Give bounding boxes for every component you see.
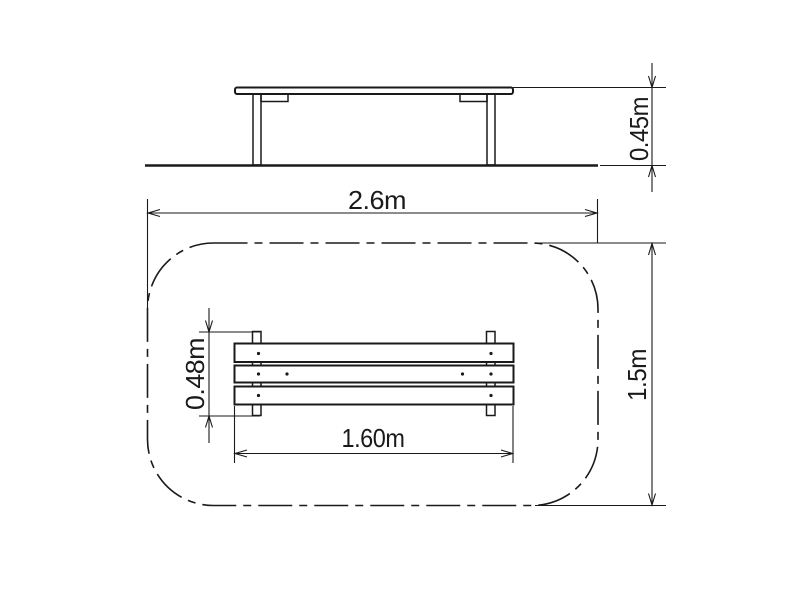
dim-label-zone-depth: 1.5m bbox=[622, 349, 652, 401]
bench-slat-bottom bbox=[235, 387, 514, 405]
dim-label-bench-length: 1.60m bbox=[342, 423, 405, 453]
screw-dot bbox=[489, 394, 492, 397]
dim-label-zone-width: 2.6m bbox=[348, 185, 406, 215]
screw-dot bbox=[489, 352, 492, 355]
bench-slat-middle bbox=[235, 366, 514, 383]
elevation-view bbox=[145, 88, 598, 166]
dim-label-bench-height: 0.45m bbox=[624, 97, 654, 161]
bench-leg-left-side bbox=[253, 94, 261, 165]
screw-dot bbox=[257, 372, 260, 375]
screw-dot bbox=[461, 372, 464, 375]
screw-dot bbox=[285, 372, 288, 375]
screw-dot bbox=[257, 394, 260, 397]
dimension-bench-length: 1.60m bbox=[235, 406, 514, 463]
bench-leg-right-side bbox=[487, 94, 495, 165]
dimension-zone-width: 2.6m bbox=[148, 185, 598, 309]
bench-slat-top bbox=[235, 344, 514, 363]
drawing-canvas: 0.45m 2.6m 1.5m bbox=[0, 0, 800, 600]
bench-seat-side bbox=[235, 88, 513, 95]
dim-label-bench-depth: 0.48m bbox=[180, 338, 210, 410]
bench-bracket-left bbox=[261, 94, 288, 102]
plan-view bbox=[235, 332, 514, 416]
dimension-bench-height: 0.45m bbox=[513, 63, 666, 192]
screw-dot bbox=[489, 372, 492, 375]
screw-dot bbox=[257, 352, 260, 355]
bench-technical-drawing: 0.45m 2.6m 1.5m bbox=[0, 0, 800, 600]
dimension-zone-depth: 1.5m bbox=[535, 243, 666, 506]
bench-bracket-right bbox=[460, 94, 487, 102]
